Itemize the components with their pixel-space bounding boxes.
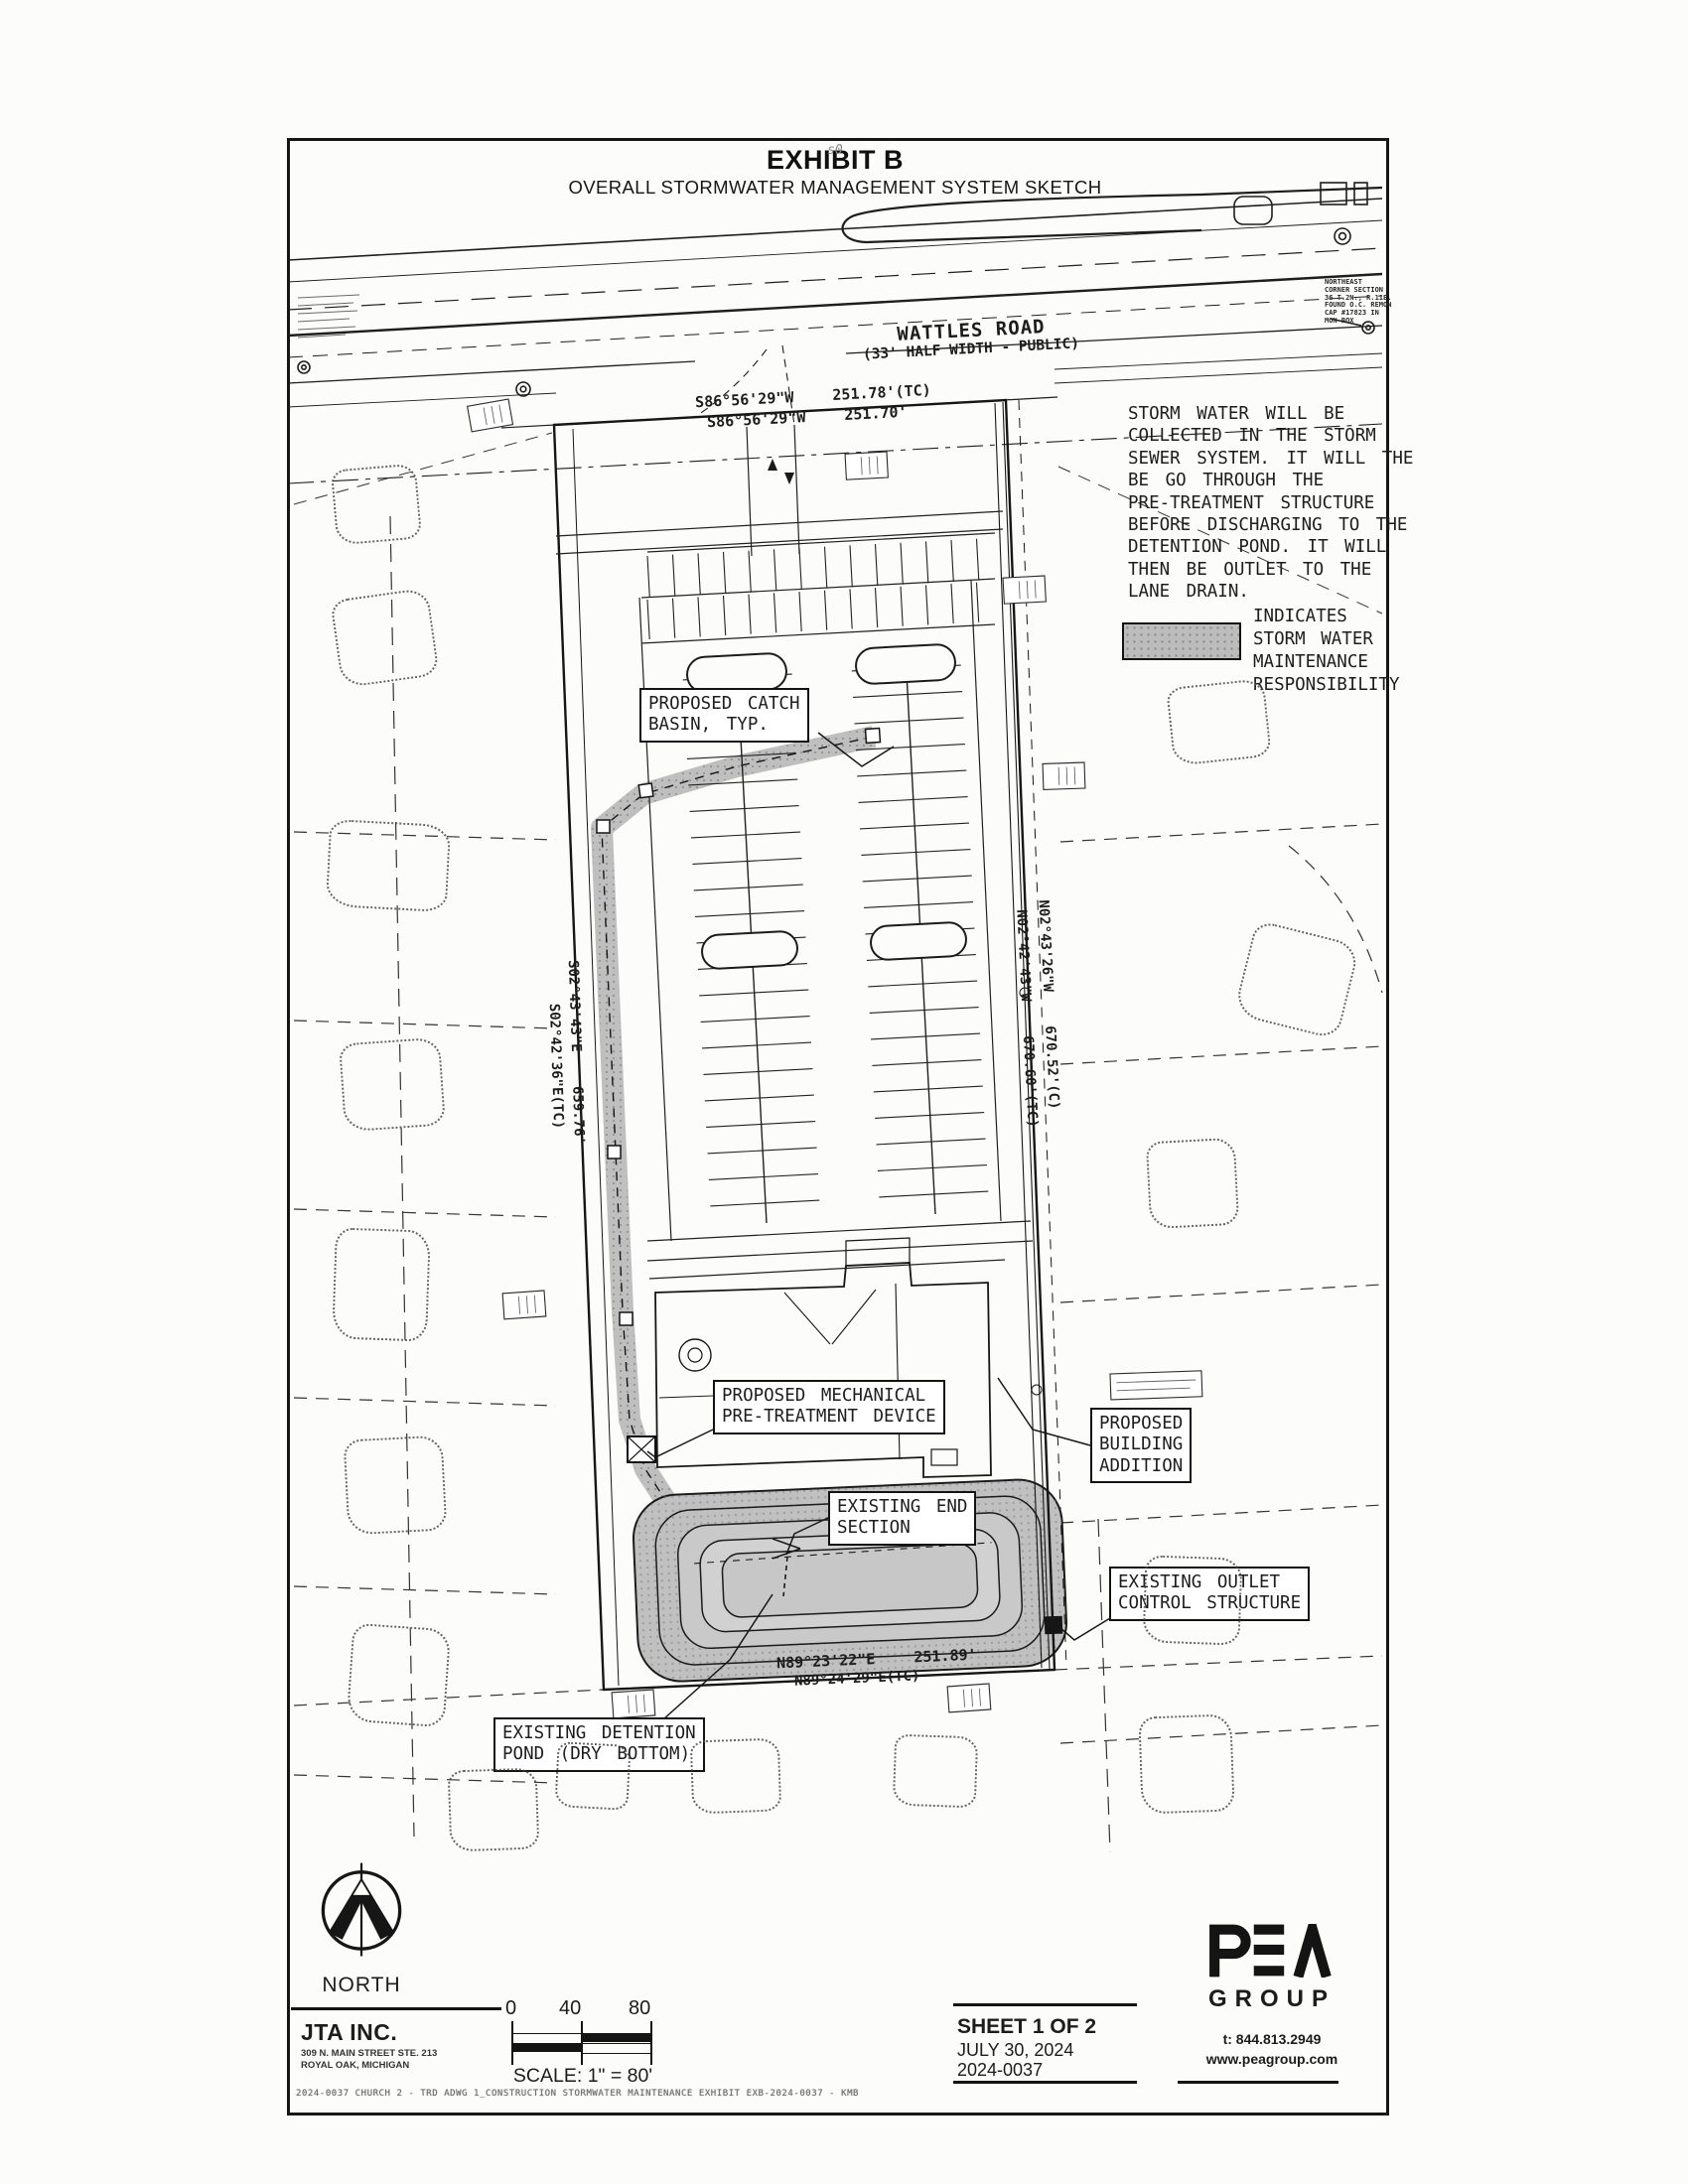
project-number: 2024-0037 [957, 2060, 1043, 2081]
callout-building-addition: PROPOSED BUILDING ADDITION [1090, 1408, 1192, 1483]
house-footprint [332, 1227, 431, 1341]
note-line: THEN BE OUTLET TO THE [1128, 559, 1413, 581]
callout-line: BASIN, TYP. [648, 715, 800, 736]
house-footprint [347, 1623, 452, 1728]
callout-line: PROPOSED [1099, 1414, 1183, 1434]
file-path-fineprint: 2024-0037 CHURCH 2 - TRD ADWG 1_CONSTRUC… [296, 2089, 859, 2099]
callout-line: SECTION [837, 1518, 967, 1539]
brand-group-label: GROUP [1197, 1985, 1346, 2013]
callout-pretreatment: PROPOSED MECHANICAL PRE-TREATMENT DEVICE [713, 1380, 945, 1434]
house-footprint [326, 819, 451, 912]
house-footprint [330, 588, 439, 689]
callout-end-section: EXISTING END SECTION [828, 1491, 976, 1546]
titleblock-divider [1178, 2081, 1338, 2084]
callout-line: EXISTING END [837, 1497, 967, 1518]
callout-catch-basin: PROPOSED CATCH BASIN, TYP. [639, 688, 809, 743]
note-line: STORM WATER WILL BE [1128, 403, 1413, 425]
sheet-number: SHEET 1 OF 2 [957, 2015, 1096, 2039]
scale-bar-segment [581, 2043, 652, 2054]
note-line: BE GO THROUGH THE [1128, 470, 1413, 491]
house-footprint [1146, 1138, 1239, 1230]
scan-mark: s0 [827, 143, 843, 158]
callout-line: ADDITION [1099, 1456, 1183, 1477]
note-line: BEFORE DISCHARGING TO THE [1128, 514, 1413, 536]
scale-bar: 0 40 80 SCALE: 1" = 80' [501, 1997, 670, 2089]
house-footprint [1142, 1555, 1242, 1645]
plan-sheet: EXHIBIT B OVERALL STORMWATER MANAGEMENT … [0, 0, 1688, 2184]
note-line: COLLECTED IN THE STORM [1128, 425, 1413, 447]
firm-address-2: ROYAL OAK, MICHIGAN [301, 2060, 409, 2071]
legend-line: RESPONSIBILITY [1253, 674, 1400, 697]
titleblock-divider [953, 2081, 1137, 2084]
legend-swatch [1122, 622, 1241, 660]
firm-name: JTA INC. [301, 2019, 397, 2046]
callout-line: PRE-TREATMENT DEVICE [722, 1407, 936, 1428]
callout-line: PROPOSED CATCH [648, 694, 800, 715]
legend-line: INDICATES [1253, 606, 1400, 628]
north-label: NORTH [310, 1974, 413, 1997]
note-line: PRE-TREATMENT STRUCTURE [1128, 492, 1413, 514]
brand-web: www.peagroup.com [1197, 2051, 1346, 2067]
scale-bar-segment [511, 2043, 581, 2052]
firm-address-1: 309 N. MAIN STREET STE. 213 [301, 2048, 437, 2059]
note-line: LANE DRAIN. [1128, 581, 1413, 603]
callout-line: BUILDING [1099, 1434, 1183, 1455]
scale-tick-0: 0 [505, 1997, 516, 2020]
legend-line: STORM WATER [1253, 628, 1400, 651]
house-footprint [344, 1434, 448, 1535]
house-footprint [1166, 678, 1272, 766]
survey-line: MON BOX [1325, 318, 1391, 326]
brand-phone: t: 844.813.2949 [1197, 2031, 1346, 2047]
sheet-date: JULY 30, 2024 [957, 2040, 1073, 2061]
scale-tick-80: 80 [629, 1997, 650, 2020]
ne-corner-note: NORTHEAST CORNER SECTION 36 T.2N., R.11E… [1325, 279, 1391, 326]
titleblock-divider [291, 2007, 501, 2010]
titleblock-divider [953, 2003, 1137, 2006]
house-footprint [893, 1734, 978, 1809]
house-footprint [1138, 1713, 1234, 1814]
scale-tick-40: 40 [559, 1997, 581, 2020]
legend: INDICATES STORM WATER MAINTENANCE RESPON… [1253, 606, 1400, 697]
page-subtitle: OVERALL STORMWATER MANAGEMENT SYSTEM SKE… [287, 177, 1383, 199]
north-arrow-icon [316, 1860, 407, 1972]
house-footprint [448, 1767, 540, 1851]
house-footprint [331, 463, 422, 545]
scale-bar-segment [581, 2033, 650, 2042]
house-footprint [554, 1741, 631, 1811]
stormwater-note: STORM WATER WILL BE COLLECTED IN THE STO… [1128, 403, 1413, 604]
callout-line: PROPOSED MECHANICAL [722, 1386, 936, 1407]
house-footprint [339, 1037, 446, 1133]
note-line: DETENTION POND. IT WILL [1128, 536, 1413, 558]
house-footprint [690, 1737, 782, 1814]
pea-logo-icon: PEA [1205, 1924, 1336, 1978]
scale-label: SCALE: 1" = 80' [493, 2065, 672, 2088]
note-line: SEWER SYSTEM. IT WILL THE [1128, 448, 1413, 470]
legend-line: MAINTENANCE [1253, 651, 1400, 674]
callout-line: EXISTING DETENTION [502, 1723, 696, 1744]
